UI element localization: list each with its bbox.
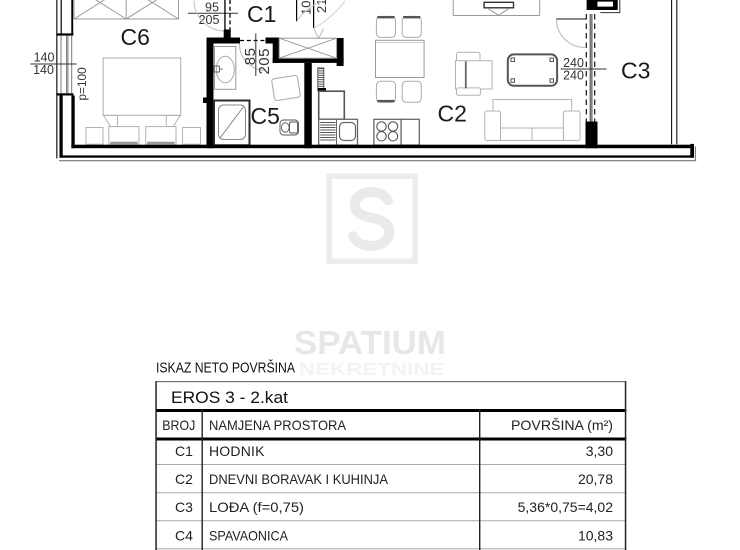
svg-text:DNEVNI BORAVAK I KUHINJA: DNEVNI BORAVAK I KUHINJA — [209, 471, 389, 487]
svg-text:C1: C1 — [247, 1, 276, 27]
svg-text:NAMJENA PROSTORA: NAMJENA PROSTORA — [209, 417, 347, 433]
svg-text:HODNIK: HODNIK — [209, 443, 265, 459]
svg-text:BROJ: BROJ — [162, 417, 195, 433]
svg-text:140: 140 — [33, 63, 54, 77]
svg-text:205: 205 — [256, 48, 273, 75]
svg-text:C5: C5 — [251, 103, 280, 129]
svg-text:C2: C2 — [175, 471, 193, 487]
svg-text:C2: C2 — [438, 101, 467, 127]
svg-text:C3: C3 — [175, 499, 193, 515]
svg-text:NEKRETNINE: NEKRETNINE — [299, 359, 445, 379]
svg-text:C4: C4 — [175, 527, 193, 543]
svg-text:10,83: 10,83 — [578, 527, 613, 543]
svg-text:EROS 3 - 2.kat: EROS 3 - 2.kat — [171, 388, 288, 407]
svg-text:LOĐA (f=0,75): LOĐA (f=0,75) — [209, 499, 304, 515]
svg-text:SPATIUM: SPATIUM — [294, 324, 446, 361]
svg-text:C3: C3 — [621, 58, 650, 84]
svg-text:ISKAZ NETO POVRŠINA: ISKAZ NETO POVRŠINA — [156, 360, 295, 377]
svg-text:C6: C6 — [121, 24, 150, 50]
svg-text:240: 240 — [563, 69, 584, 83]
svg-text:100: 100 — [299, 0, 314, 15]
svg-text:20,78: 20,78 — [578, 471, 613, 487]
svg-text:3,30: 3,30 — [586, 443, 613, 459]
svg-text:SPAVAONICA: SPAVAONICA — [209, 527, 289, 543]
svg-text:POVRŠINA (m²): POVRŠINA (m²) — [511, 417, 613, 433]
svg-text:C1: C1 — [175, 443, 193, 459]
svg-text:5,36*0,75=4,02: 5,36*0,75=4,02 — [518, 499, 614, 515]
svg-text:p=100: p=100 — [75, 67, 89, 101]
